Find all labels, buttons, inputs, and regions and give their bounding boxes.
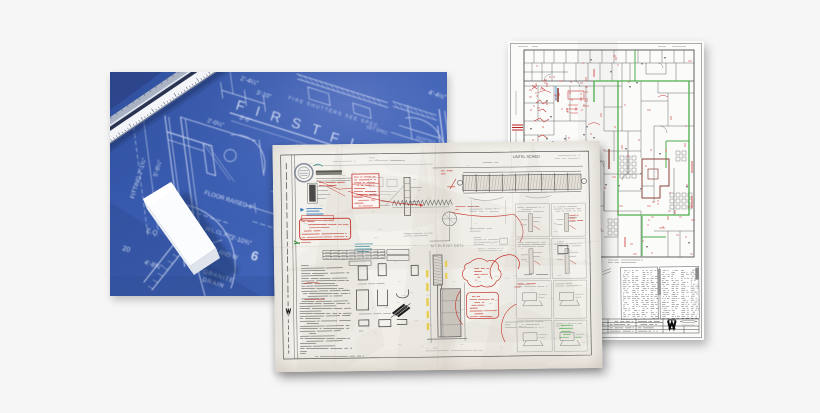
svg-text:LINTEL SCHED: LINTEL SCHED [513,155,540,159]
svg-text:MT ELEVAT DETL: MT ELEVAT DETL [431,244,464,248]
